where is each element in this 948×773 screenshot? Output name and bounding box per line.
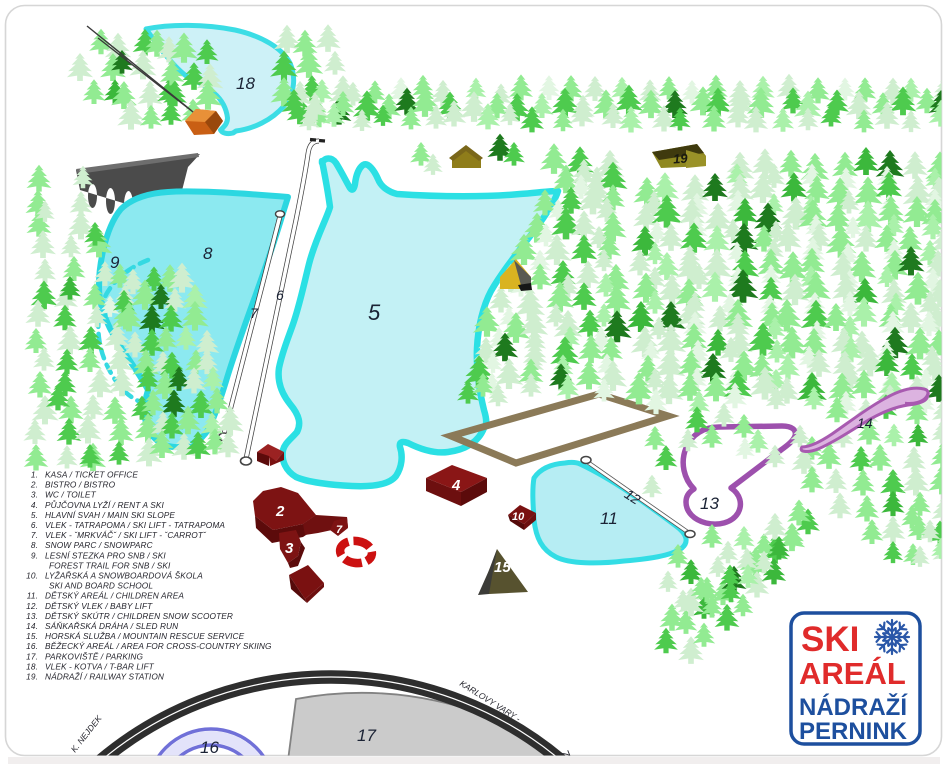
svg-text:PARKOVIŠTĚ / PARKING: PARKOVIŠTĚ / PARKING (45, 651, 143, 661)
svg-text:8.: 8. (31, 540, 38, 550)
svg-text:NÁDRAŽÍ: NÁDRAŽÍ (799, 693, 908, 721)
svg-text:11: 11 (600, 509, 618, 528)
svg-text:4.: 4. (31, 500, 38, 510)
svg-text:15: 15 (494, 559, 511, 576)
svg-text:10.: 10. (26, 571, 38, 581)
svg-text:PŮJČOVNA LYŽÍ / RENT A SKI: PŮJČOVNA LYŽÍ / RENT A SKI (45, 499, 165, 510)
svg-text:5.: 5. (31, 510, 38, 520)
svg-text:14.: 14. (26, 621, 38, 631)
svg-text:SÁŇKAŘSKÁ DRÁHA / SLED RUN: SÁŇKAŘSKÁ DRÁHA / SLED RUN (45, 621, 178, 631)
svg-text:NÁDRAŽÍ / RAILWAY STATION: NÁDRAŽÍ / RAILWAY STATION (45, 672, 164, 682)
svg-text:19.: 19. (26, 672, 38, 682)
svg-text:VLEK - KOTVA / T-BAR LIFT: VLEK - KOTVA / T-BAR LIFT (45, 661, 155, 671)
svg-text:4: 4 (451, 477, 461, 494)
svg-text:7: 7 (250, 305, 259, 321)
svg-text:13.: 13. (26, 611, 38, 621)
svg-text:16.: 16. (26, 641, 38, 651)
svg-text:BĚŽECKÝ AREÁL / AREA FOR CROSS: BĚŽECKÝ AREÁL / AREA FOR CROSS-COUNTRY S… (45, 641, 272, 651)
svg-text:VLEK - ˇMRKVÁČˇ / SKI LIFT - ˇ: VLEK - ˇMRKVÁČˇ / SKI LIFT - ˇCARROTˇ (45, 530, 207, 540)
svg-text:10: 10 (512, 511, 525, 523)
svg-text:17.: 17. (26, 651, 38, 661)
svg-text:17: 17 (357, 726, 376, 745)
svg-text:14: 14 (857, 415, 873, 431)
svg-text:3.: 3. (31, 490, 38, 500)
svg-text:SKI: SKI (801, 620, 859, 659)
svg-text:19: 19 (673, 151, 689, 167)
svg-text:3: 3 (285, 540, 294, 557)
svg-text:18.: 18. (26, 661, 38, 671)
svg-text:FOREST TRAIL FOR SNB / SKI: FOREST TRAIL FOR SNB / SKI (49, 560, 171, 570)
svg-text:LESNÍ STEZKA PRO SNB / SKI: LESNÍ STEZKA PRO SNB / SKI (45, 550, 166, 560)
svg-text:HLAVNÍ SVAH / MAIN SKI SLOPE: HLAVNÍ SVAH / MAIN SKI SLOPE (45, 510, 175, 520)
svg-text:9.: 9. (31, 550, 38, 560)
svg-text:LYŽAŘSKÁ A SNOWBOARDOVÁ ŠKOLA: LYŽAŘSKÁ A SNOWBOARDOVÁ ŠKOLA (45, 571, 203, 581)
svg-text:SKI AND BOARD SCHOOL: SKI AND BOARD SCHOOL (49, 581, 153, 591)
svg-text:BISTRO / BISTRO: BISTRO / BISTRO (45, 480, 116, 490)
svg-text:2.: 2. (30, 480, 38, 490)
svg-text:KASA / TICKET OFFICE: KASA / TICKET OFFICE (45, 470, 138, 480)
svg-text:WC / TOILET: WC / TOILET (45, 490, 97, 500)
svg-text:HORSKÁ SLUŽBA / MOUNTAIN RESCU: HORSKÁ SLUŽBA / MOUNTAIN RESCUE SERVICE (45, 631, 245, 641)
svg-text:SNOW PARC / SNOWPARC: SNOW PARC / SNOWPARC (45, 540, 154, 550)
svg-text:8: 8 (203, 244, 213, 263)
svg-text:PERNINK: PERNINK (799, 718, 908, 745)
svg-text:6: 6 (276, 287, 284, 303)
svg-text:AREÁL: AREÁL (799, 656, 906, 691)
svg-text:6.: 6. (31, 520, 38, 530)
svg-text:1.: 1. (31, 470, 38, 480)
svg-text:12.: 12. (26, 601, 38, 611)
svg-text:7: 7 (336, 524, 343, 536)
svg-text:13: 13 (700, 494, 719, 513)
svg-text:16: 16 (200, 738, 219, 757)
svg-text:DĚTSKÝ VLEK / BABY LIFT: DĚTSKÝ VLEK / BABY LIFT (45, 601, 153, 611)
svg-text:18: 18 (236, 74, 255, 93)
svg-text:5: 5 (368, 300, 381, 325)
svg-text:DĚTSKÝ AREÁL / CHILDREN AREA: DĚTSKÝ AREÁL / CHILDREN AREA (45, 591, 184, 601)
svg-text:7.: 7. (31, 530, 38, 540)
svg-text:11.: 11. (27, 591, 38, 601)
svg-text:15.: 15. (26, 631, 38, 641)
svg-text:VLEK - TATRAPOMA / SKI LIFT -: VLEK - TATRAPOMA / SKI LIFT - TATRAPOMA (45, 520, 225, 530)
svg-text:DĚTSKÝ SKÚTR / CHILDREN SNOW S: DĚTSKÝ SKÚTR / CHILDREN SNOW SCOOTER (45, 611, 233, 621)
svg-text:2: 2 (275, 503, 285, 520)
